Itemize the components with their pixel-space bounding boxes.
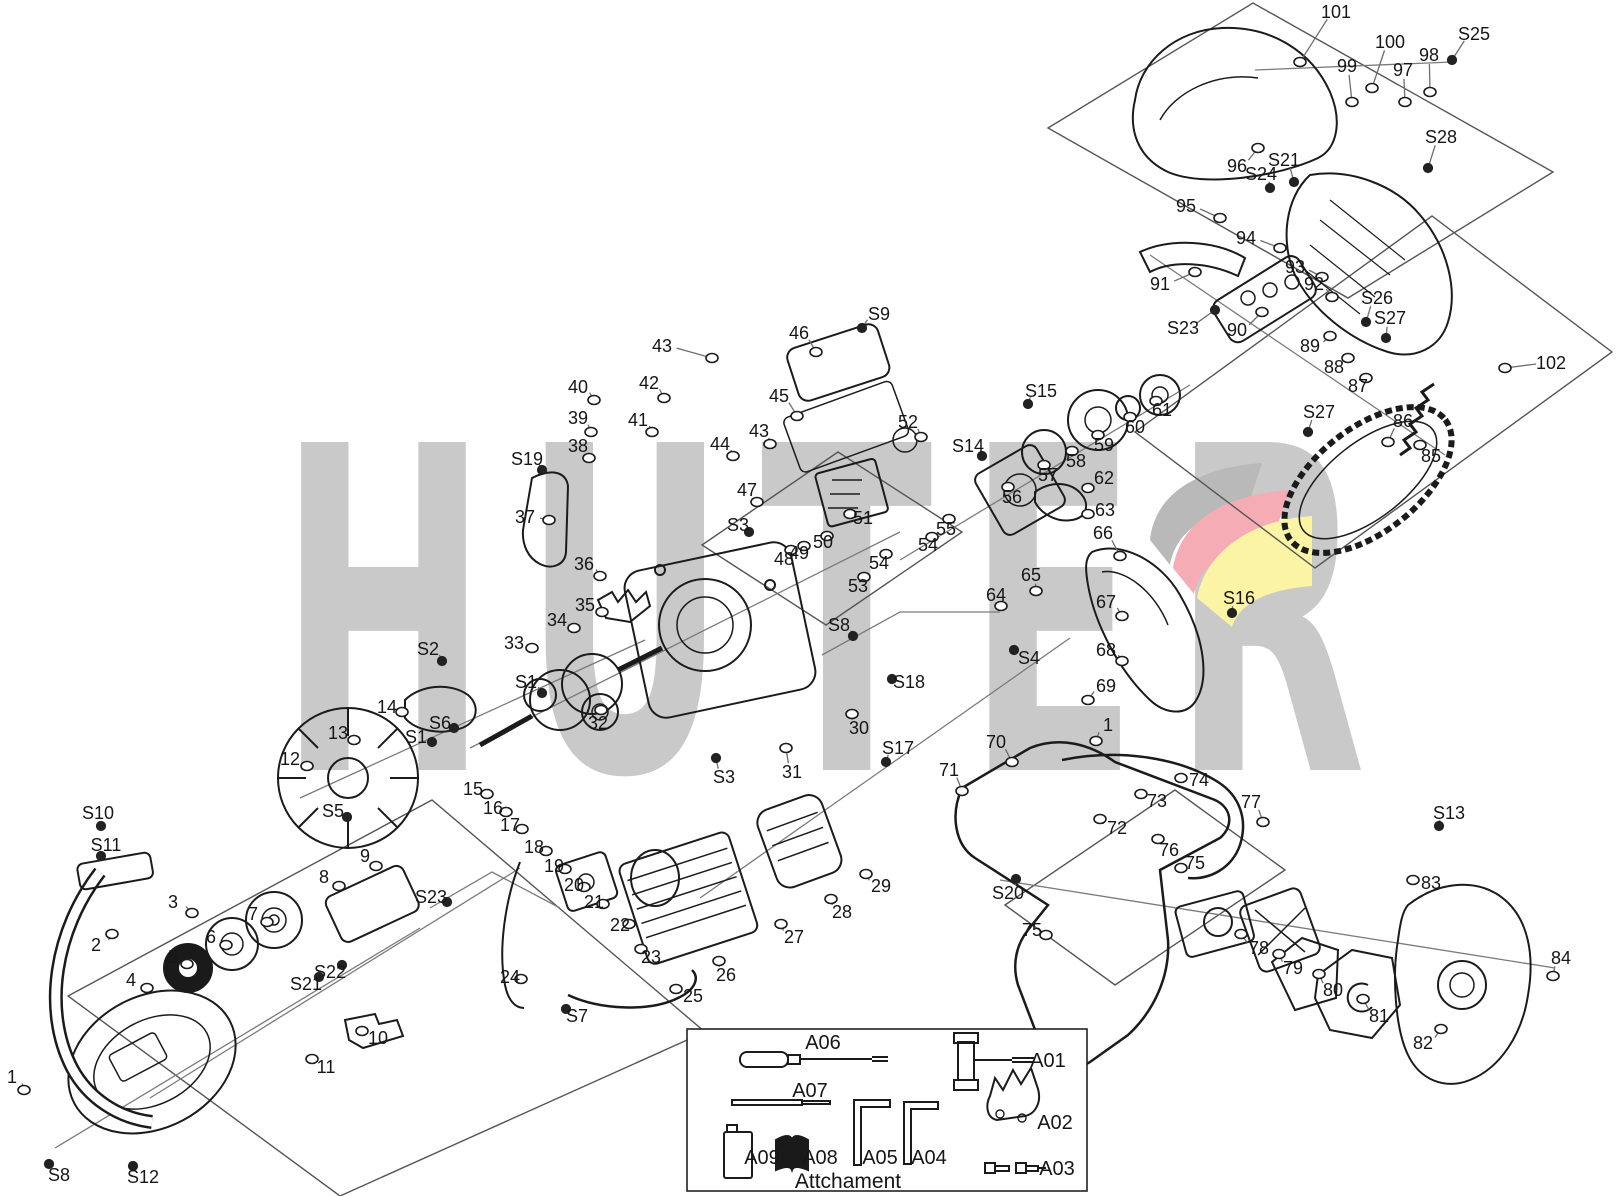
part-label-2: 2: [91, 935, 101, 955]
part-icon: [141, 984, 153, 993]
part-label-61: 61: [1152, 400, 1172, 420]
part-icon: [1257, 818, 1269, 827]
part-icon: [1382, 438, 1394, 447]
part-label-20: 20: [564, 875, 584, 895]
part-label-80: 80: [1323, 980, 1343, 1000]
part-label-85: 85: [1421, 446, 1441, 466]
part-label-43: 43: [652, 336, 672, 356]
part-label-95: 95: [1176, 196, 1196, 216]
part-label-44: 44: [710, 434, 730, 454]
part-label-S8: S8: [48, 1165, 70, 1185]
front-handle-art: [56, 852, 154, 1122]
part-icon: [670, 985, 682, 994]
part-icon: [1090, 737, 1102, 746]
part-label-6: 6: [206, 927, 216, 947]
part-label-9: 9: [360, 846, 370, 866]
part-label-35: 35: [575, 595, 595, 615]
part-icon: [348, 736, 360, 745]
part-icon: [106, 930, 118, 939]
part-label-31: 31: [782, 762, 802, 782]
part-label-39: 39: [568, 408, 588, 428]
part-label-73: 73: [1147, 791, 1167, 811]
screw-icon: [1290, 178, 1299, 187]
part-icon: [1175, 774, 1187, 783]
part-icon: [1116, 657, 1128, 666]
part-icon: [18, 1086, 30, 1095]
attachment-label-A09: A09: [744, 1147, 780, 1169]
part-icon: [1326, 293, 1338, 302]
part-label-24: 24: [500, 967, 520, 987]
part-label-55: 55: [936, 519, 956, 539]
attachment-label-A07: A07: [792, 1080, 828, 1102]
part-label-101: 101: [1321, 2, 1351, 22]
part-icon: [1313, 970, 1325, 979]
part-label-S15: S15: [1025, 381, 1057, 401]
part-icon: [1082, 696, 1094, 705]
part-icon: [1189, 268, 1201, 277]
part-label-63: 63: [1095, 500, 1115, 520]
part-icon: [1407, 876, 1419, 885]
part-label-S1: S1: [405, 727, 427, 747]
attachment-label-A02: A02: [1037, 1112, 1073, 1134]
part-label-42: 42: [639, 373, 659, 393]
part-icon: [1357, 995, 1369, 1004]
part-label-S9: S9: [868, 304, 890, 324]
part-label-45: 45: [769, 386, 789, 406]
part-label-69: 69: [1096, 676, 1116, 696]
part-label-S27: S27: [1303, 402, 1335, 422]
screw-icon: [1228, 609, 1237, 618]
part-label-57: 57: [1038, 465, 1058, 485]
part-label-13: 13: [328, 723, 348, 743]
attachment-label-A08: A08: [802, 1147, 838, 1169]
part-label-51: 51: [853, 508, 873, 528]
part-label-18: 18: [524, 837, 544, 857]
part-label-25: 25: [683, 986, 703, 1006]
filter-base-art: [1238, 886, 1322, 974]
part-icon: [1346, 98, 1358, 107]
part-label-94: 94: [1236, 228, 1256, 248]
part-label-87: 87: [1348, 376, 1368, 396]
part-icon: [1366, 84, 1378, 93]
part-label-99: 99: [1337, 56, 1357, 76]
part-label-S25: S25: [1458, 24, 1490, 44]
part-label-33: 33: [504, 633, 524, 653]
part-icon: [1274, 244, 1286, 253]
screw-icon: [1211, 306, 1220, 315]
screw-icon: [538, 689, 547, 698]
part-label-19: 19: [544, 856, 564, 876]
part-icon: [396, 708, 408, 717]
part-label-49: 49: [789, 543, 809, 563]
part-icon: [1435, 1025, 1447, 1034]
part-icon: [1114, 552, 1126, 561]
part-label-S28: S28: [1425, 127, 1457, 147]
leader-line: [1300, 19, 1327, 62]
part-label-S27: S27: [1374, 308, 1406, 328]
part-icon: [543, 516, 555, 525]
part-icon: [810, 348, 822, 357]
part-label-90: 90: [1227, 320, 1247, 340]
part-label-67: 67: [1096, 592, 1116, 612]
part-label-S5: S5: [322, 801, 344, 821]
part-icon: [220, 941, 232, 950]
part-label-66: 66: [1093, 523, 1113, 543]
part-label-97: 97: [1393, 60, 1413, 80]
part-label-102: 102: [1536, 353, 1566, 373]
part-label-S3: S3: [727, 515, 749, 535]
screw-icon: [858, 324, 867, 333]
part-label-S17: S17: [882, 738, 914, 758]
part-label-62: 62: [1094, 468, 1114, 488]
screw-icon: [1266, 184, 1275, 193]
part-label-36: 36: [574, 554, 594, 574]
part-label-7: 7: [248, 904, 258, 924]
part-icon: [1499, 364, 1511, 373]
attachment-label-A06: A06: [805, 1032, 841, 1054]
part-icon: [301, 762, 313, 771]
part-icon: [1094, 815, 1106, 824]
part-label-S12: S12: [127, 1167, 159, 1187]
part-label-65: 65: [1021, 565, 1041, 585]
part-icon: [1547, 972, 1559, 981]
part-label-83: 83: [1421, 873, 1441, 893]
part-label-84: 84: [1551, 948, 1571, 968]
part-label-10: 10: [368, 1028, 388, 1048]
part-label-S16: S16: [1223, 588, 1255, 608]
part-label-78: 78: [1249, 938, 1269, 958]
screw-icon: [1448, 56, 1457, 65]
part-icon: [588, 396, 600, 405]
part-label-4: 4: [126, 970, 136, 990]
part-icon: [1082, 484, 1094, 493]
part-label-92: 92: [1304, 274, 1324, 294]
part-label-54: 54: [869, 553, 889, 573]
part-icon: [356, 1027, 368, 1036]
part-label-26: 26: [716, 965, 736, 985]
part-icon: [1082, 510, 1094, 519]
part-icon: [596, 608, 608, 617]
part-label-53: 53: [848, 576, 868, 596]
part-label-75: 75: [1185, 853, 1205, 873]
screw-icon: [1424, 164, 1433, 173]
part-icon: [261, 918, 273, 927]
part-label-74: 74: [1189, 770, 1209, 790]
part-icon: [186, 909, 198, 918]
part-label-28: 28: [832, 902, 852, 922]
part-label-S23: S23: [415, 887, 447, 907]
part-label-76: 76: [1159, 840, 1179, 860]
part-label-75: 75: [1022, 920, 1042, 940]
part-icon: [1235, 930, 1247, 939]
part-label-30: 30: [849, 718, 869, 738]
part-icon: [1214, 214, 1226, 223]
parts-diagram-page: HUTER: [0, 0, 1618, 1196]
part-label-S23: S23: [1167, 318, 1199, 338]
part-label-79: 79: [1283, 958, 1303, 978]
part-label-S8: S8: [828, 615, 850, 635]
attachment-label-A01: A01: [1030, 1050, 1066, 1072]
part-label-S19: S19: [511, 449, 543, 469]
part-icon: [1256, 308, 1268, 317]
part-icon: [1116, 612, 1128, 621]
part-label-S21: S21: [290, 974, 322, 994]
part-label-64: 64: [986, 585, 1006, 605]
part-label-41: 41: [628, 410, 648, 430]
part-label-S11: S11: [91, 835, 122, 855]
part-label-60: 60: [1125, 417, 1145, 437]
part-label-S26: S26: [1361, 288, 1393, 308]
part-label-43: 43: [749, 421, 769, 441]
part-icon: [181, 960, 193, 969]
part-label-27: 27: [784, 927, 804, 947]
part-label-S6: S6: [429, 713, 451, 733]
part-label-93: 93: [1285, 257, 1305, 277]
part-label-70: 70: [986, 732, 1006, 752]
part-label-S4: S4: [1018, 648, 1040, 668]
part-label-8: 8: [319, 867, 329, 887]
part-label-91: 91: [1150, 274, 1170, 294]
part-icon: [956, 787, 968, 796]
part-label-50: 50: [813, 532, 833, 552]
part-label-32: 32: [588, 713, 608, 733]
part-label-S1: S1: [515, 672, 537, 692]
part-label-3: 3: [168, 892, 178, 912]
part-icon: [1006, 758, 1018, 767]
part-icon: [1252, 144, 1264, 153]
part-label-72: 72: [1107, 818, 1127, 838]
part-icon: [526, 644, 538, 653]
part-label-88: 88: [1324, 357, 1344, 377]
part-label-52: 52: [898, 412, 918, 432]
part-label-47: 47: [737, 480, 757, 500]
screw-icon: [1304, 428, 1313, 437]
part-icon: [1135, 790, 1147, 799]
part-label-56: 56: [1002, 487, 1022, 507]
part-label-34: 34: [547, 610, 567, 630]
leader-line: [1372, 50, 1385, 88]
screw-icon: [428, 738, 437, 747]
part-icon: [333, 882, 345, 891]
part-label-S3: S3: [713, 767, 735, 787]
part-label-37: 37: [515, 507, 535, 527]
part-icon: [568, 624, 580, 633]
part-label-1: 1: [7, 1067, 17, 1087]
part-icon: [1424, 88, 1436, 97]
part-label-23: 23: [641, 947, 661, 967]
exploded-diagram: HUTER: [0, 0, 1618, 1196]
part-icon: [1294, 58, 1306, 67]
part-label-S13: S13: [1433, 803, 1465, 823]
part-label-29: 29: [871, 876, 891, 896]
part-label-14: 14: [377, 697, 397, 717]
part-icon: [706, 354, 718, 363]
attachment-box: A06A07A09A08A05A04A01A02A03 Attchament: [687, 1029, 1087, 1193]
attachment-label-A04: A04: [911, 1147, 947, 1169]
part-label-S21: S21: [1268, 150, 1300, 170]
attachment-label-A03: A03: [1039, 1158, 1075, 1180]
part-label-12: 12: [280, 749, 300, 769]
part-label-S14: S14: [952, 436, 984, 456]
part-icon: [370, 862, 382, 871]
part-label-89: 89: [1300, 336, 1320, 356]
part-label-86: 86: [1393, 411, 1413, 431]
fuel-tank-art: [1395, 885, 1531, 1084]
part-label-46: 46: [789, 323, 809, 343]
part-label-22: 22: [610, 915, 630, 935]
rear-housing-art: [1287, 173, 1452, 354]
part-label-S20: S20: [992, 883, 1024, 903]
part-label-11: 11: [317, 1057, 336, 1077]
part-label-59: 59: [1094, 435, 1114, 455]
attachment-title: Attchament: [795, 1170, 901, 1193]
part-icon: [594, 572, 606, 581]
part-icon: [791, 412, 803, 421]
screw-icon: [1382, 334, 1391, 343]
part-label-77: 77: [1241, 792, 1261, 812]
part-label-58: 58: [1066, 451, 1086, 471]
part-icon: [1030, 587, 1042, 596]
part-label-21: 21: [584, 892, 604, 912]
part-label-40: 40: [568, 377, 588, 397]
part-label-81: 81: [1369, 1006, 1389, 1026]
part-icon: [780, 744, 792, 753]
part-label-68: 68: [1096, 640, 1116, 660]
part-label-17: 17: [500, 815, 520, 835]
part-icon: [1324, 332, 1336, 341]
part-label-S18: S18: [893, 672, 925, 692]
screw-icon: [882, 758, 891, 767]
screw-icon: [712, 754, 721, 763]
part-label-5: 5: [168, 947, 178, 967]
screw-icon: [1362, 318, 1371, 327]
part-label-1: 1: [1103, 715, 1113, 735]
part-icon: [1399, 98, 1411, 107]
part-label-82: 82: [1413, 1033, 1433, 1053]
part-label-100: 100: [1375, 32, 1405, 52]
part-label-S7: S7: [566, 1006, 588, 1026]
attachment-label-A05: A05: [862, 1147, 898, 1169]
part-icon: [915, 433, 927, 442]
part-label-S10: S10: [82, 803, 114, 823]
part-label-S2: S2: [417, 639, 439, 659]
part-label-71: 71: [939, 760, 959, 780]
part-label-98: 98: [1419, 45, 1439, 65]
part-icon: [658, 394, 670, 403]
part-label-38: 38: [568, 436, 588, 456]
part-label-15: 15: [463, 779, 483, 799]
